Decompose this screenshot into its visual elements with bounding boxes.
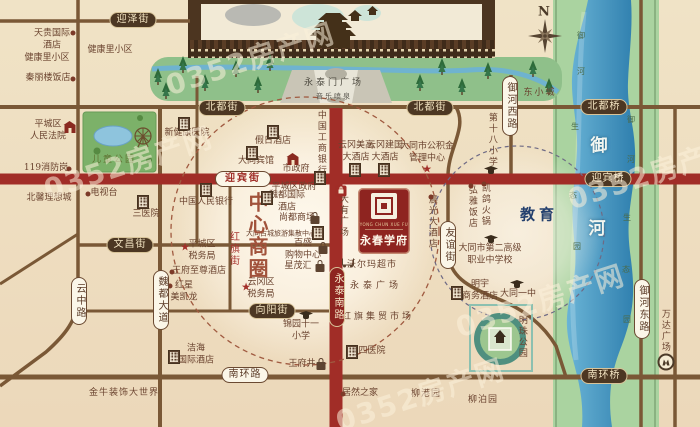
dot-icon bbox=[71, 77, 76, 82]
building-icon bbox=[349, 163, 361, 177]
school-icon bbox=[510, 280, 524, 288]
street-badge: 南环路 bbox=[222, 367, 269, 383]
map-label: 平城区 税务局 bbox=[188, 239, 215, 262]
map-label: 御 bbox=[627, 115, 635, 125]
shopred-icon bbox=[336, 186, 347, 197]
building-icon bbox=[246, 146, 258, 160]
map-label: 弘雅饭店 bbox=[465, 185, 477, 229]
map-label: 四医院 bbox=[358, 346, 385, 358]
star-icon: ★ bbox=[241, 282, 251, 293]
building-icon bbox=[168, 350, 180, 364]
dot-icon bbox=[341, 392, 346, 397]
street-badge: 友谊街 bbox=[440, 221, 456, 269]
dot-icon bbox=[67, 167, 72, 172]
park-label: 明珠公园 bbox=[515, 315, 527, 359]
city-wall-compound bbox=[188, 0, 495, 58]
street-badge: 魏都大道 bbox=[153, 270, 169, 330]
map-label: 生 bbox=[623, 213, 631, 223]
cart-icon bbox=[342, 259, 354, 266]
map-label: 永泰广场 bbox=[350, 281, 402, 293]
map-label: 明宇 商务酒店 bbox=[462, 279, 498, 302]
street-badge: 南环桥 bbox=[581, 368, 628, 384]
gov-icon bbox=[65, 125, 76, 133]
river-name: 河 bbox=[589, 218, 606, 240]
map-label: 健康里小区 bbox=[24, 53, 69, 65]
map-label: 河 bbox=[627, 155, 635, 165]
map-label: 居然之家 bbox=[342, 388, 378, 400]
star-icon: ★ bbox=[180, 242, 190, 253]
street-badge: 迎泽街 bbox=[110, 12, 157, 28]
project-logo-icon bbox=[371, 193, 397, 219]
building-icon bbox=[178, 117, 190, 131]
map-label: 晨光大酒店 bbox=[425, 195, 437, 250]
map-label: 魏都国际 酒店 bbox=[269, 190, 305, 213]
wanda-icon bbox=[658, 354, 675, 371]
map-label: 中国工商银行 bbox=[314, 110, 326, 176]
street-badge: 迎宾街 bbox=[215, 171, 271, 187]
dot-icon bbox=[86, 192, 91, 197]
street-badge: 文昌街 bbox=[107, 237, 154, 253]
map-label: 电视台 bbox=[90, 188, 117, 200]
dot-icon bbox=[170, 270, 175, 275]
project-latin-name: YONG CHUN XUE FU bbox=[360, 222, 408, 227]
map-label: 音乐喷泉 bbox=[316, 92, 352, 101]
map-label: 大有广场 bbox=[336, 194, 348, 238]
school-icon bbox=[484, 235, 498, 243]
map-label: 平城区 人民法院 bbox=[30, 119, 66, 142]
map-label: 沃尔玛超市 bbox=[347, 260, 397, 272]
map-label: 三医院 bbox=[132, 209, 159, 221]
street-badge: 云中路 bbox=[71, 277, 87, 325]
street-badge: 北都街 bbox=[199, 100, 246, 116]
bag-icon bbox=[316, 264, 325, 272]
zone-cbd-label: 中心商圈 bbox=[244, 192, 270, 280]
project-name: 永春学府 bbox=[360, 232, 408, 248]
street-badge: 北都桥 bbox=[581, 99, 628, 115]
map-label: 王府井 bbox=[288, 359, 315, 371]
map-label: 百盛 购物中心 bbox=[285, 238, 321, 261]
building-icon bbox=[314, 171, 326, 185]
map-label: 秦丽楼饭店 bbox=[25, 73, 70, 85]
star-icon: ★ bbox=[422, 164, 432, 175]
map-label: 洁海 国际酒店 bbox=[178, 343, 214, 366]
map-label: 东小城 bbox=[523, 88, 556, 100]
school-icon bbox=[299, 311, 313, 319]
map-label: 河 bbox=[577, 67, 585, 77]
street-badge: 北都街 bbox=[407, 100, 454, 116]
dot-icon bbox=[482, 182, 487, 187]
river-name: 御 bbox=[591, 135, 608, 157]
map-label: 生 bbox=[571, 122, 579, 132]
map-label: 健康里小区 bbox=[87, 45, 132, 57]
map-label: 大同市第二高级 职业中学校 bbox=[458, 243, 521, 266]
map-label: 万达广场 bbox=[658, 309, 670, 353]
map-label: 柳泊园 bbox=[468, 395, 498, 407]
map-label: 金牛装饰大世界 bbox=[89, 388, 159, 400]
building-icon bbox=[346, 345, 358, 359]
map-label: 市政府 bbox=[282, 164, 309, 176]
bag-icon bbox=[319, 246, 328, 254]
building-icon bbox=[261, 191, 273, 205]
dot-icon bbox=[71, 31, 76, 36]
map-label: 御 bbox=[577, 31, 585, 41]
bag-icon bbox=[317, 362, 326, 370]
street-badge: 御河东路 bbox=[634, 279, 650, 339]
map-label: 中国人民银行 bbox=[179, 197, 233, 209]
map-label: 云冈区 税务局 bbox=[247, 277, 274, 300]
gov-icon bbox=[288, 157, 299, 165]
map-label: 永泰门广场 bbox=[304, 78, 364, 90]
building-icon bbox=[137, 195, 149, 209]
map-label: 凯鸽火锅 bbox=[478, 183, 490, 227]
building-icon bbox=[451, 286, 463, 300]
building-icon bbox=[378, 163, 390, 177]
compass-north-label: N bbox=[538, 5, 550, 22]
map-label: 柳港园 bbox=[411, 389, 441, 401]
building-icon bbox=[267, 125, 279, 139]
map-label: 大同市公积金 管理中心 bbox=[400, 141, 454, 164]
park-label: 儿童公园 bbox=[92, 155, 136, 167]
location-map: YONG CHUN XUE FU 永春学府 迎泽街北都街北都街北都桥文昌街向阳街… bbox=[0, 0, 700, 427]
map-label: 态 bbox=[569, 191, 577, 201]
street-badge: 迎宾桥 bbox=[585, 171, 632, 187]
building-icon bbox=[312, 226, 324, 240]
map-label: 园 bbox=[623, 315, 631, 325]
bag-icon bbox=[311, 216, 320, 224]
map-label: 天贵国际 酒店 bbox=[34, 28, 70, 51]
map-label: 王府至尊酒店 bbox=[172, 266, 226, 278]
building-icon bbox=[200, 183, 212, 197]
street-badge: 御河西路 bbox=[502, 76, 518, 136]
dot-icon bbox=[429, 195, 434, 200]
map-label: 119消防岗 bbox=[24, 163, 68, 175]
map-label: 北馨理想城 bbox=[26, 193, 71, 205]
map-artwork bbox=[0, 0, 700, 427]
street-name: 红旗街 bbox=[227, 231, 240, 267]
map-label: 星茂汇 bbox=[284, 261, 311, 273]
street-badge: 永泰南路 bbox=[329, 267, 345, 327]
map-label: 锦园十一 小学 bbox=[283, 319, 319, 342]
project-card: YONG CHUN XUE FU 永春学府 bbox=[358, 188, 410, 254]
zone-education-label: 教育 bbox=[520, 205, 558, 225]
street-badge: 向阳街 bbox=[249, 303, 296, 319]
map-label: 红旗集贸市场 bbox=[342, 312, 414, 324]
map-label: 园 bbox=[573, 242, 581, 252]
map-label: 第十八小学 bbox=[485, 113, 497, 168]
map-label: 态 bbox=[622, 265, 630, 275]
map-label: 云冈建国 大酒店 bbox=[367, 140, 403, 163]
dot-icon bbox=[469, 184, 474, 189]
school-icon bbox=[484, 166, 498, 174]
map-label: 红星 美凯龙 bbox=[170, 280, 197, 303]
map-label: 大同一中 bbox=[500, 289, 536, 301]
